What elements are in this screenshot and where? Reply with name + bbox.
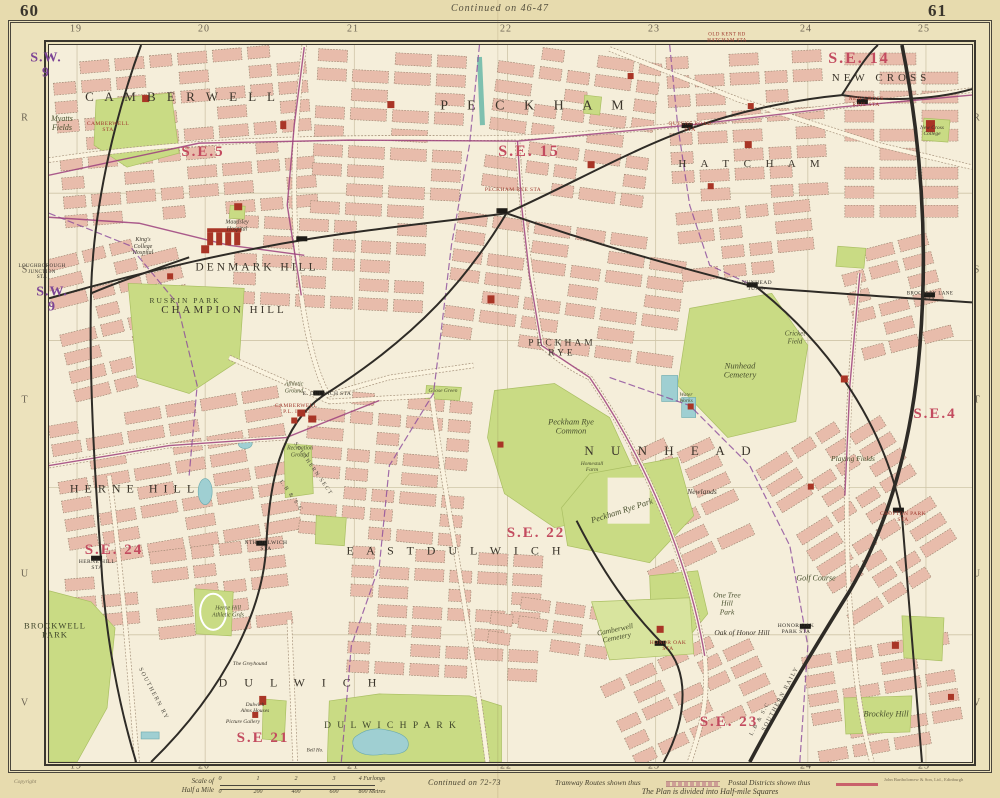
scale-bar: 01234 Furlongs0200400600800 Metres [220, 776, 410, 796]
map-frame [44, 40, 976, 766]
publisher-imprint: John Bartholomew & Son, Ltd., Edinburgh [884, 777, 990, 782]
park-small-green [315, 515, 346, 545]
continued-on-top: Continued on 46-47 [390, 3, 610, 14]
map-graphics [49, 45, 972, 762]
canal [479, 57, 482, 125]
scale-furlong-tick: 4 Furlongs [359, 776, 386, 782]
scale-furlong-tick: 2 [295, 776, 298, 782]
park-small-green [583, 95, 601, 115]
pond [198, 478, 212, 504]
park-brockley-hill [843, 695, 911, 733]
atlas-page: 60 61 Continued on 46-47 192021222324251… [0, 0, 1000, 798]
scale-metre-tick: 0 [219, 789, 222, 795]
park-athletic-ground [901, 615, 943, 660]
scale-caption-line1: Scale of [148, 777, 214, 786]
postal-line-sample [836, 783, 878, 786]
scale-furlong-tick: 1 [257, 776, 260, 782]
scale-furlong-tick: 0 [219, 776, 222, 782]
park-camberwell-cemetery [591, 597, 693, 659]
park-dulwich [327, 693, 501, 761]
water-works-se23 [141, 731, 159, 738]
water-works-reservoir [661, 375, 677, 401]
scale-metre-tick: 600 [330, 789, 339, 795]
scale-metre-tick: 400 [292, 789, 301, 795]
park-picture-gallery-grounds [262, 698, 286, 740]
page-number-right: 61 [928, 1, 947, 21]
legend-strip: Copyright Scale of Half a Mile 01234 Fur… [0, 774, 1000, 798]
page-number-left: 60 [20, 1, 39, 21]
scale-caption: Scale of Half a Mile [148, 777, 214, 795]
scale-metre-tick: 200 [254, 789, 263, 795]
scale-caption-line2: Half a Mile [148, 786, 214, 795]
scale-furlong-tick: 3 [333, 776, 336, 782]
park-small-green [835, 246, 865, 268]
park-recreation-ground [284, 443, 313, 497]
map-canvas [48, 44, 973, 763]
plan-note: The Plan is divided into Half-mile Squar… [560, 787, 860, 796]
postal-legend-label: Postal Districts shown thus [728, 778, 810, 787]
scale-metre-tick: 800 Metres [359, 789, 386, 795]
tramway-legend-label: Tramway Routes shown thus [555, 778, 641, 787]
continued-on-bottom: Continued on 72-73 [428, 778, 501, 787]
park-clearing [607, 477, 649, 523]
copyright-note: Copyright [14, 779, 36, 785]
